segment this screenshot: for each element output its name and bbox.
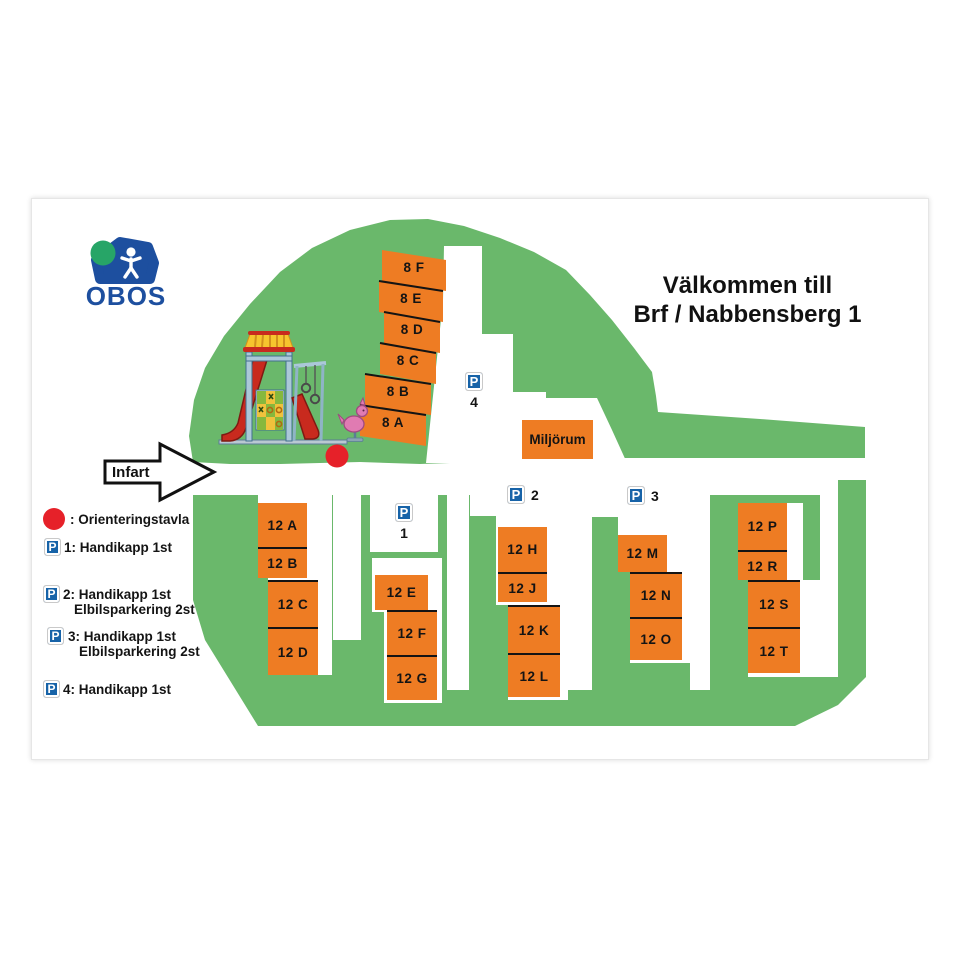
building-12M: 12 M (618, 535, 667, 572)
parking-area-3-sign: P 3 (627, 486, 659, 505)
legend-item-p2: P 2: Handikapp 1st Elbilsparkering 2st (43, 585, 195, 617)
red-dot-icon (43, 508, 65, 530)
parking-icon: P (395, 503, 413, 522)
legend-item-orienteringstavla: : Orienteringstavla (43, 508, 189, 530)
parking-icon: P (43, 585, 60, 603)
building-12L: 12 L (508, 653, 560, 697)
tic-tac-toe-panel (257, 391, 283, 430)
legend-item-p1: P 1: Handikapp 1st (44, 538, 172, 556)
building-12F: 12 F (387, 610, 437, 655)
building-label-8E: 8 E (381, 289, 441, 307)
building-12T: 12 T (748, 627, 800, 673)
building-12J: 12 J (498, 572, 547, 602)
building-label-8C: 8 C (382, 351, 434, 369)
building-12H: 12 H (498, 527, 547, 572)
legend-item-p4: P 4: Handikapp 1st (43, 680, 171, 698)
building-12P: 12 P (738, 503, 787, 550)
entrance-label: Infart (112, 464, 162, 481)
parking-icon: P (44, 538, 61, 556)
parking-number-4: 4 (470, 394, 478, 410)
legend-text: 3: Handikapp 1st Elbilsparkering 2st (68, 629, 200, 659)
legend-text-line1: 3: Handikapp 1st (68, 629, 200, 644)
orientation-board-marker (326, 445, 349, 468)
building-label-8A: 8 A (362, 413, 424, 431)
parking-area-4-sign: P 4 (465, 372, 483, 410)
site-map-page: OBOS Välkommen till Brf / Nabbensberg 1 … (0, 0, 960, 960)
building-label-8B: 8 B (367, 382, 429, 400)
building-12B: 12 B (258, 547, 307, 578)
parking-icon: P (43, 680, 60, 698)
parking-icon: P (465, 372, 483, 391)
miljorum-building: Miljörum (522, 420, 593, 459)
page-title: Välkommen till Brf / Nabbensberg 1 (575, 271, 920, 329)
building-12G: 12 G (387, 655, 437, 700)
title-line-2: Brf / Nabbensberg 1 (575, 300, 920, 329)
legend-text-line2: Elbilsparkering 2st (63, 602, 195, 617)
legend-text-line1: 2: Handikapp 1st (63, 587, 195, 602)
parking-icon: P (507, 485, 525, 504)
building-12D: 12 D (268, 627, 318, 675)
building-label-8D: 8 D (386, 320, 438, 338)
legend-text: : Orienteringstavla (70, 512, 189, 527)
legend-text: 2: Handikapp 1st Elbilsparkering 2st (63, 587, 195, 617)
legend-text-line2: Elbilsparkering 2st (68, 644, 200, 659)
legend-item-p3: P 3: Handikapp 1st Elbilsparkering 2st (47, 627, 200, 659)
obos-logo-text: OBOS (76, 281, 176, 312)
building-12S: 12 S (748, 580, 800, 627)
parking-area-2-sign: P 2 (507, 485, 539, 504)
building-12O: 12 O (630, 617, 682, 660)
parking-number-2: 2 (531, 487, 539, 504)
building-12C: 12 C (268, 580, 318, 627)
building-label-8F: 8 F (384, 258, 444, 276)
building-12A: 12 A (258, 503, 307, 547)
building-12K: 12 K (508, 605, 560, 653)
building-12N: 12 N (630, 572, 682, 617)
legend-text: 4: Handikapp 1st (63, 682, 171, 697)
building-12E: 12 E (375, 575, 428, 610)
legend-text: 1: Handikapp 1st (64, 540, 172, 555)
title-line-1: Välkommen till (575, 271, 920, 300)
parking-icon: P (47, 627, 64, 645)
parking-number-3: 3 (651, 488, 659, 505)
parking-icon: P (627, 486, 645, 505)
building-12R: 12 R (738, 550, 787, 580)
parking-number-1: 1 (400, 525, 408, 541)
parking-area-1-sign: P 1 (395, 503, 413, 541)
